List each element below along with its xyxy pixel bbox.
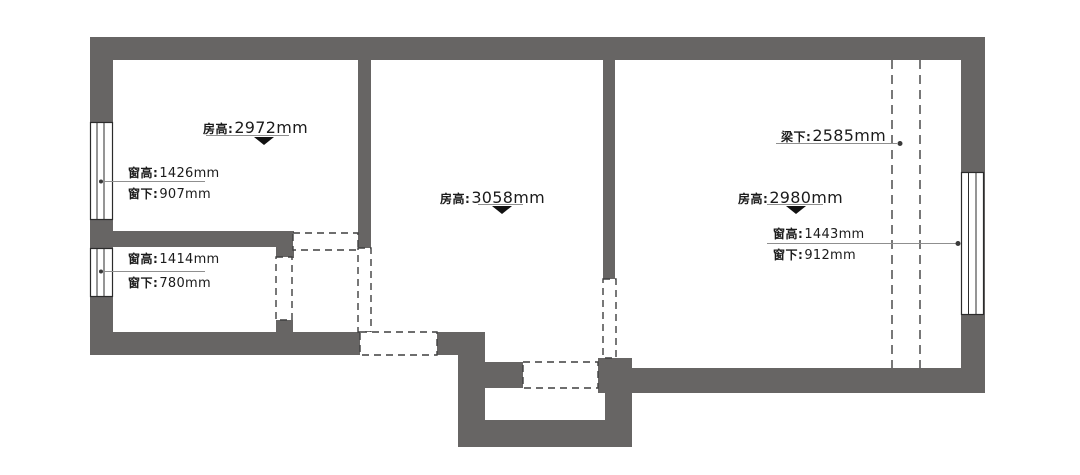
small-room-window-height-prefix: 窗高: bbox=[128, 250, 158, 267]
small-room-window-below-label: 窗下:780mm bbox=[128, 274, 211, 291]
room3-window-height-label: 窗高:1443mm bbox=[773, 225, 865, 242]
room1-window-below-label: 窗下:907mm bbox=[128, 185, 211, 202]
wall-room3-bottom bbox=[615, 368, 983, 393]
window-right bbox=[962, 173, 984, 315]
wall-stub-bottom bbox=[276, 320, 293, 333]
door-room1-bottom bbox=[293, 233, 358, 250]
room1-window-leader-dot-icon bbox=[99, 180, 103, 184]
small-room-window-leader-dot-icon bbox=[99, 270, 103, 274]
wall-room1-room2 bbox=[358, 60, 371, 248]
room3-window-height-value: 1443mm bbox=[804, 227, 864, 242]
door-entrance-vestibule bbox=[523, 362, 598, 388]
room1-window-height-value: 1426mm bbox=[159, 166, 219, 181]
beam-below-value: 2585mm bbox=[812, 126, 886, 145]
room3-window-below-prefix: 窗下: bbox=[773, 246, 803, 263]
room1-window-below-prefix: 窗下: bbox=[128, 185, 158, 202]
wall-vestibule-top bbox=[485, 362, 523, 388]
beam-below-label: 梁下:2585mm bbox=[781, 126, 886, 145]
small-room-window-height-value: 1414mm bbox=[159, 252, 219, 267]
small-room-window-below-prefix: 窗下: bbox=[128, 274, 158, 291]
room1-height-arrow-icon bbox=[254, 137, 274, 145]
small-room-window-below-value: 780mm bbox=[159, 276, 211, 291]
room2-height-value: 3058mm bbox=[471, 188, 545, 207]
door-room2-room3 bbox=[603, 279, 616, 358]
room3-height-label: 房高:2980mm bbox=[738, 188, 843, 207]
room1-height-label: 房高:2972mm bbox=[203, 118, 308, 137]
room3-window-below-label: 窗下:912mm bbox=[773, 246, 856, 263]
room3-height-prefix: 房高: bbox=[738, 190, 768, 207]
room2-height-arrow-icon bbox=[492, 206, 512, 214]
room3-window-height-prefix: 窗高: bbox=[773, 225, 803, 242]
room1-height-prefix: 房高: bbox=[203, 120, 233, 137]
room2-height-label: 房高:3058mm bbox=[440, 188, 545, 207]
room2-height-prefix: 房高: bbox=[440, 190, 470, 207]
room3-window-leader-dot-icon bbox=[956, 241, 961, 246]
wall-vestibule-right bbox=[605, 388, 632, 447]
wall-room2-room3 bbox=[603, 60, 615, 279]
door-bottom-exterior bbox=[360, 332, 437, 355]
wall-step-block bbox=[276, 231, 294, 258]
room1-window-below-value: 907mm bbox=[159, 187, 211, 202]
beam-lines bbox=[892, 60, 920, 368]
room1-window-height-label: 窗高:1426mm bbox=[128, 164, 220, 181]
door-hallway-room2 bbox=[358, 248, 371, 332]
beam-below-prefix: 梁下: bbox=[781, 128, 811, 145]
window-left-upper bbox=[91, 123, 113, 220]
room3-height-arrow-icon bbox=[786, 206, 806, 214]
room3-height-value: 2980mm bbox=[769, 188, 843, 207]
door-openings bbox=[276, 233, 616, 388]
small-room-window-height-label: 窗高:1414mm bbox=[128, 250, 220, 267]
room1-height-value: 2972mm bbox=[234, 118, 308, 137]
beam-leader-dot-icon bbox=[898, 141, 903, 146]
floor-plan: 房高:2972mm 窗高:1426mm 窗下:907mm 窗高:1414mm 窗… bbox=[0, 0, 1080, 475]
room1-window-height-prefix: 窗高: bbox=[128, 164, 158, 181]
wall-top bbox=[90, 37, 985, 60]
room3-window-below-value: 912mm bbox=[804, 248, 856, 263]
floor-plan-drawing bbox=[0, 0, 1080, 475]
wall-divider-room1-smallroom bbox=[113, 231, 280, 247]
door-small-room bbox=[276, 257, 292, 320]
